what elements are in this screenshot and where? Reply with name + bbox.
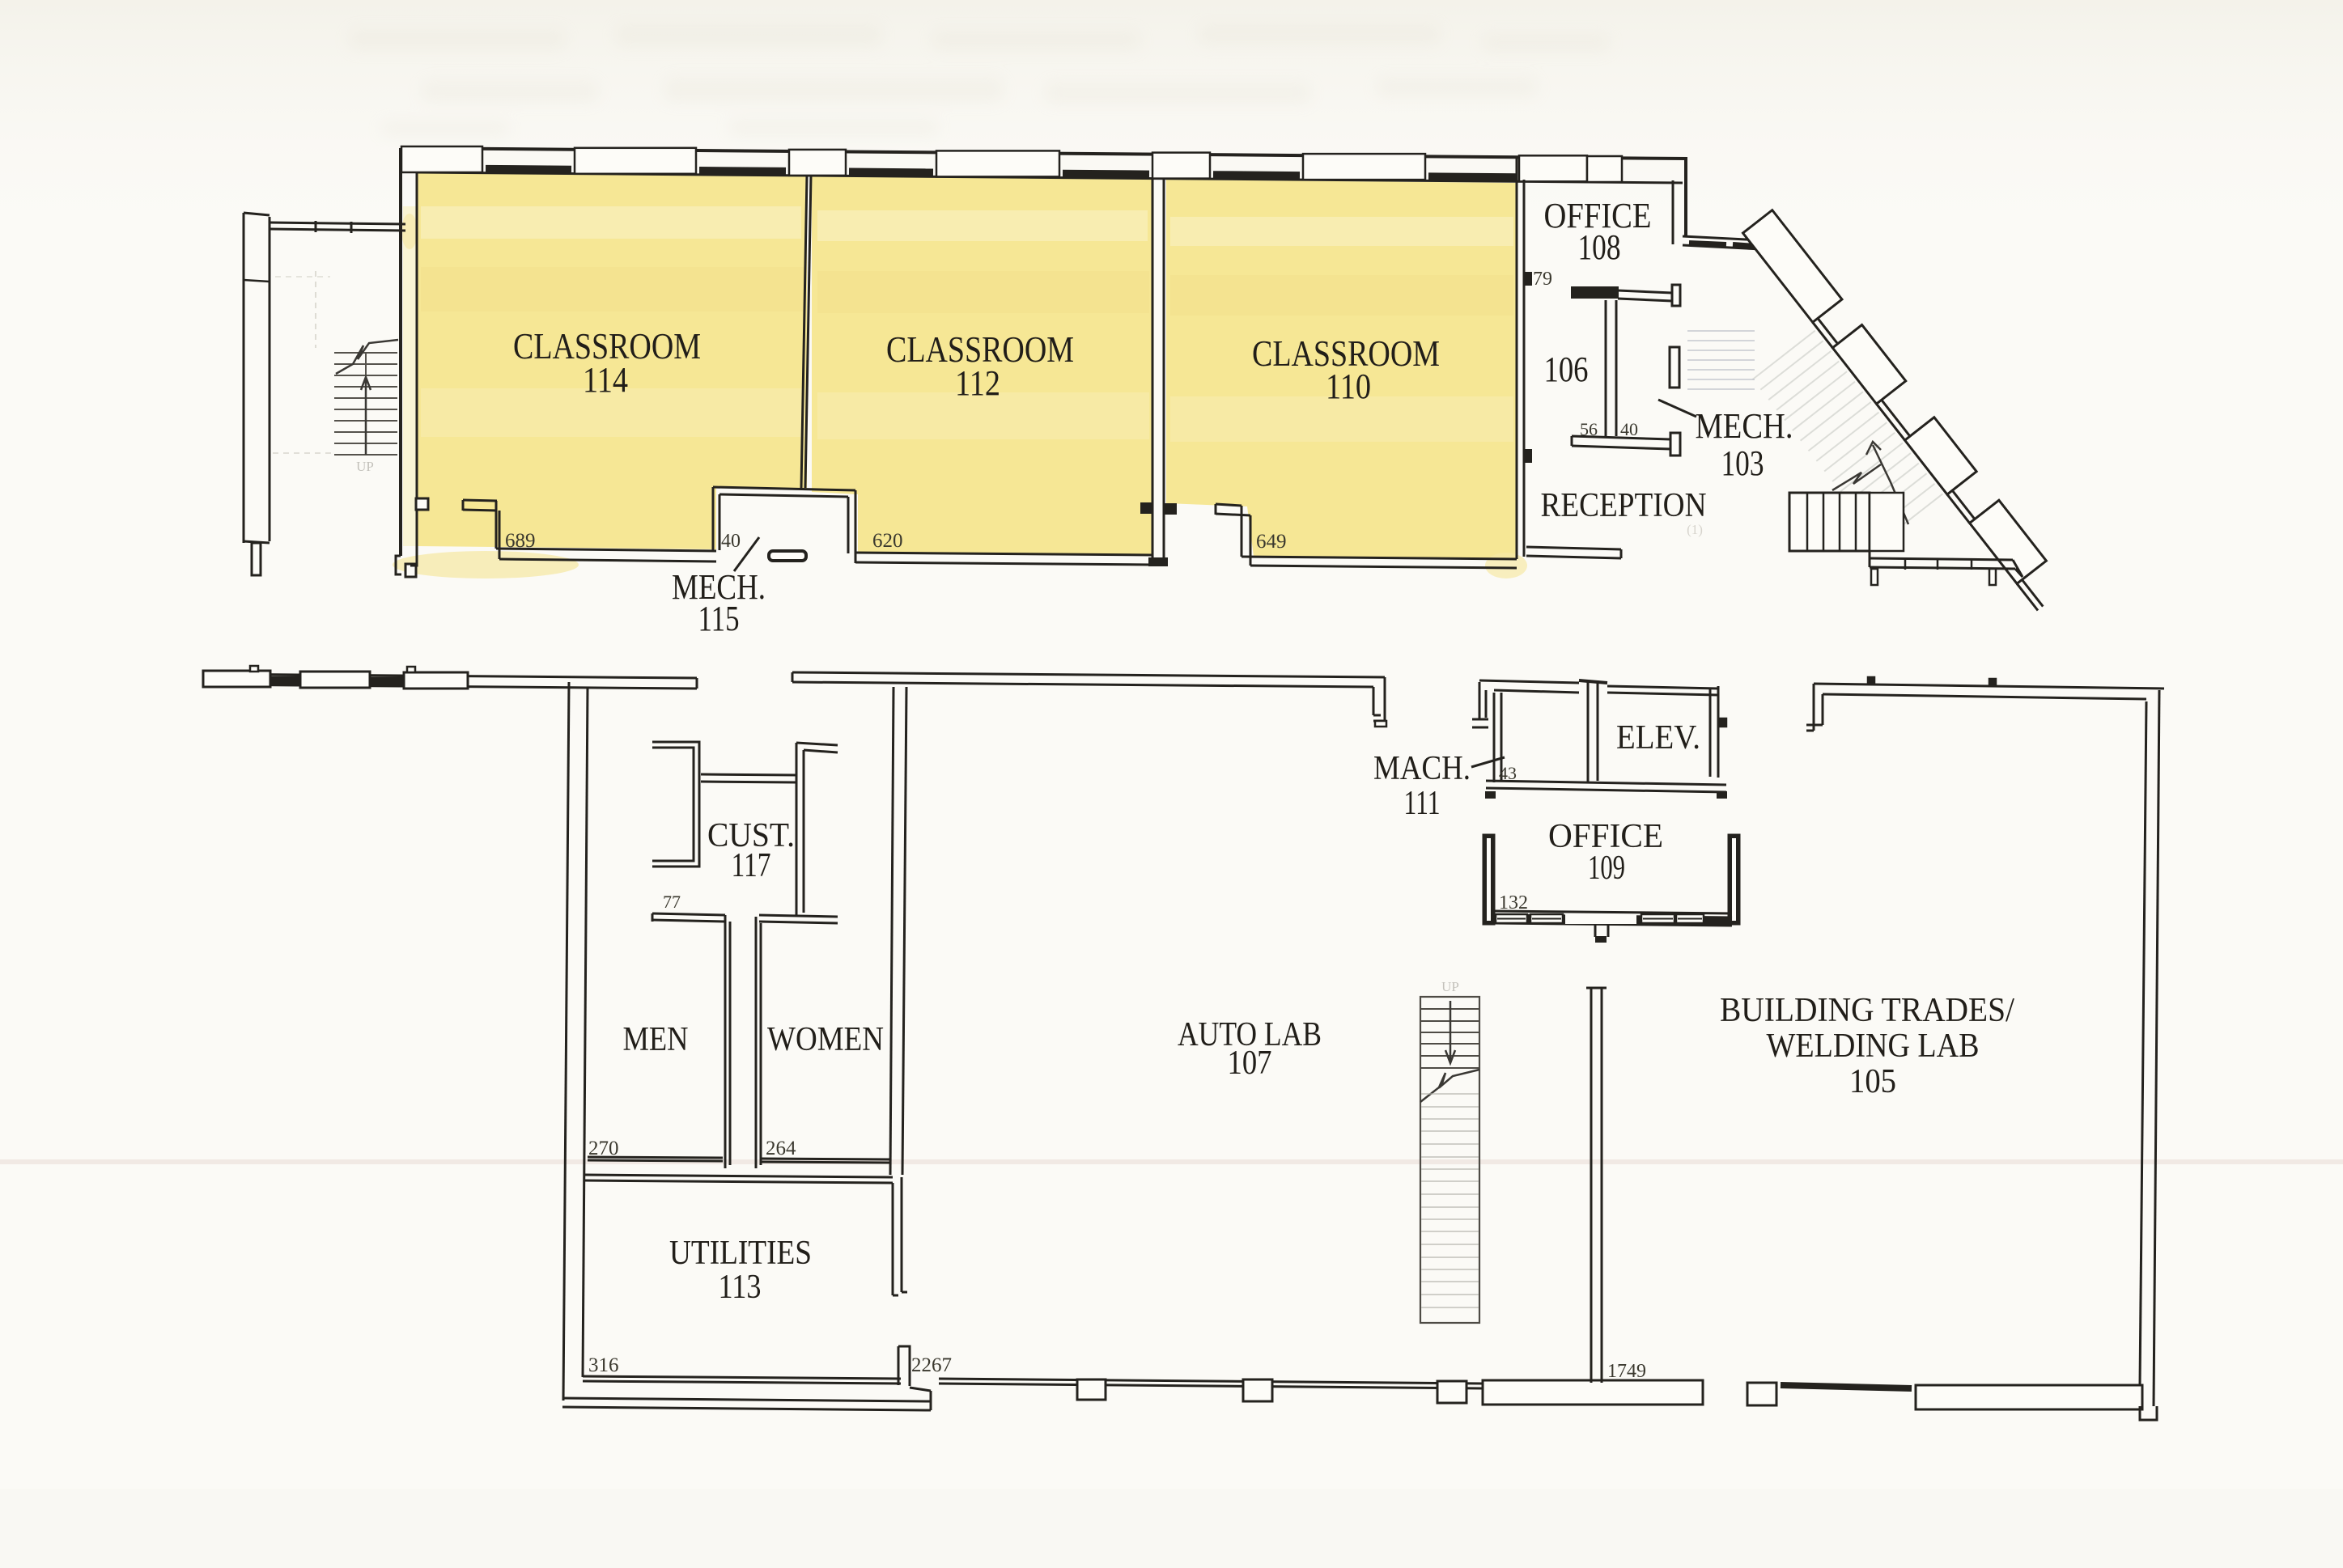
svg-text:110: 110 bbox=[1326, 367, 1371, 406]
svg-text:56: 56 bbox=[1580, 419, 1598, 439]
svg-text:132: 132 bbox=[1499, 892, 1528, 913]
svg-text:79: 79 bbox=[1533, 269, 1552, 290]
svg-text:WOMEN: WOMEN bbox=[767, 1021, 884, 1058]
svg-text:689: 689 bbox=[505, 530, 536, 552]
svg-text:107: 107 bbox=[1228, 1045, 1272, 1082]
svg-text:316: 316 bbox=[588, 1354, 619, 1376]
svg-text:2267: 2267 bbox=[911, 1354, 952, 1376]
svg-text:UTILITIES: UTILITIES bbox=[669, 1235, 812, 1272]
svg-text:43: 43 bbox=[1499, 763, 1517, 783]
svg-text:105: 105 bbox=[1849, 1063, 1896, 1100]
svg-text:40: 40 bbox=[1620, 419, 1638, 439]
svg-text:77: 77 bbox=[663, 892, 681, 912]
svg-text:649: 649 bbox=[1256, 531, 1287, 553]
svg-text:MACH.: MACH. bbox=[1373, 750, 1471, 787]
svg-text:MEN: MEN bbox=[623, 1021, 689, 1058]
svg-text:270: 270 bbox=[588, 1138, 619, 1159]
svg-text:108: 108 bbox=[1578, 227, 1621, 267]
svg-text:UP: UP bbox=[356, 459, 374, 474]
svg-text:117: 117 bbox=[732, 847, 771, 884]
svg-text:114: 114 bbox=[583, 360, 628, 400]
svg-text:112: 112 bbox=[955, 363, 1000, 403]
svg-text:UP: UP bbox=[1441, 979, 1459, 994]
svg-text:BUILDING TRADES/: BUILDING TRADES/ bbox=[1720, 992, 2014, 1029]
svg-text:113: 113 bbox=[719, 1269, 762, 1306]
svg-text:WELDING LAB: WELDING LAB bbox=[1767, 1028, 1980, 1065]
svg-text:620: 620 bbox=[872, 530, 903, 552]
svg-text:RECEPTION: RECEPTION bbox=[1541, 487, 1707, 524]
svg-text:ELEV.: ELEV. bbox=[1616, 719, 1700, 756]
svg-text:109: 109 bbox=[1588, 850, 1625, 887]
svg-text:103: 103 bbox=[1721, 443, 1764, 483]
svg-text:MECH.: MECH. bbox=[1696, 406, 1793, 446]
svg-text:40: 40 bbox=[721, 531, 741, 552]
svg-text:106: 106 bbox=[1544, 350, 1589, 389]
svg-text:115: 115 bbox=[698, 599, 740, 638]
svg-text:264: 264 bbox=[766, 1138, 796, 1159]
svg-text:1749: 1749 bbox=[1607, 1361, 1646, 1382]
svg-text:111: 111 bbox=[1404, 785, 1441, 822]
